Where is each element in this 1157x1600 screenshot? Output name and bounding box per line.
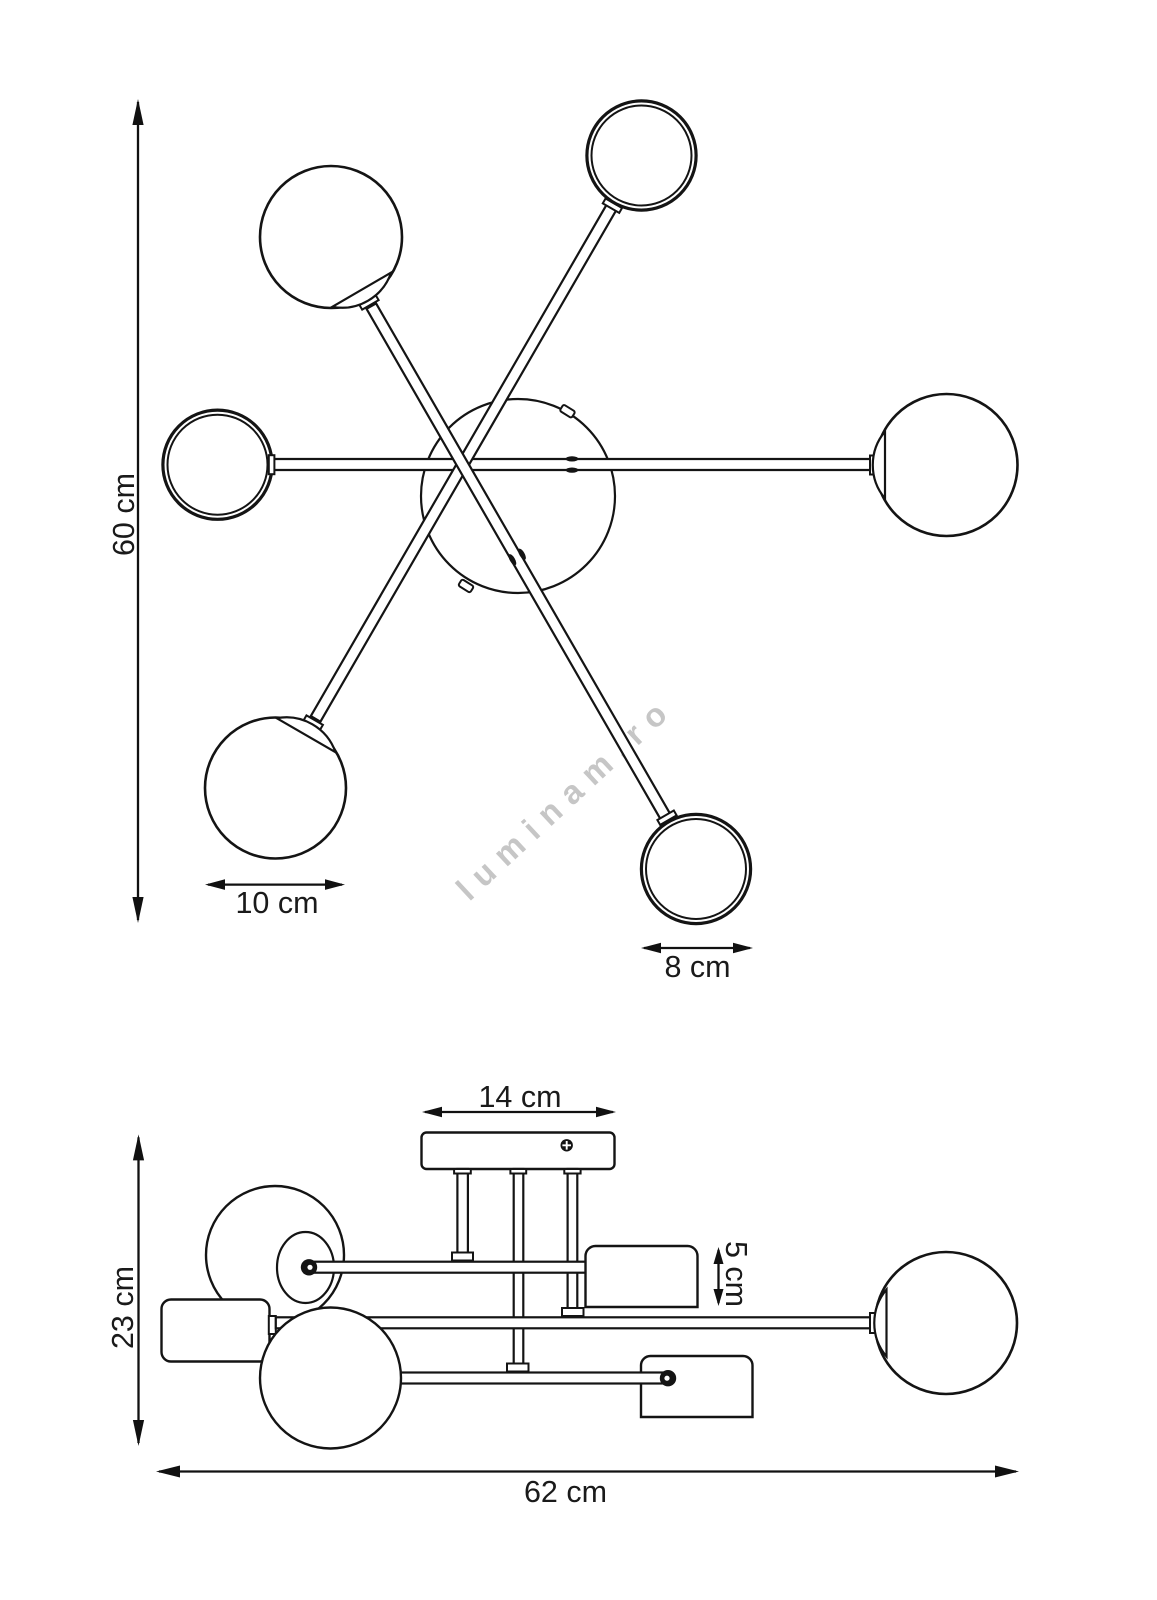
svg-text:62 cm: 62 cm <box>524 1475 607 1509</box>
svg-text:10 cm: 10 cm <box>235 886 318 920</box>
svg-text:14 cm: 14 cm <box>478 1080 561 1114</box>
svg-text:60 cm: 60 cm <box>107 473 141 556</box>
svg-text:5 cm: 5 cm <box>719 1241 753 1307</box>
svg-text:23 cm: 23 cm <box>106 1266 140 1349</box>
svg-text:8 cm: 8 cm <box>664 950 730 984</box>
